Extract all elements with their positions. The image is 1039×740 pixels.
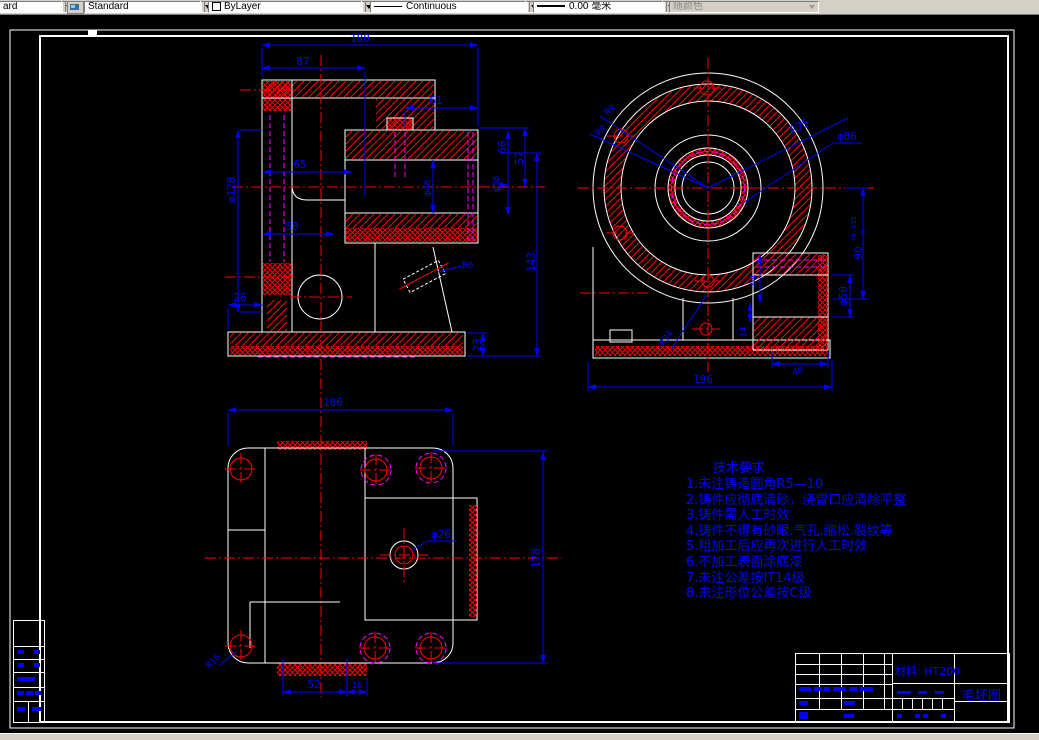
dim-57: 57 <box>513 151 526 164</box>
technical-requirements: 技术要求 1.未注铸造圆角R5—10 2.铸件应彻底清砂，浇冒口应清除平整 3.… <box>686 461 946 602</box>
dim-61: 61 <box>429 94 442 107</box>
dim-r16: R16 <box>204 652 223 671</box>
dim-90-tol-up: +0.035 <box>850 216 858 241</box>
toolbar-separator <box>662 1 667 12</box>
dim-phi26: φ26 <box>431 528 451 541</box>
dim-65: 65 <box>293 158 306 171</box>
dim-14: 14 <box>739 327 749 338</box>
dim-178: 178 <box>530 548 543 568</box>
dim-r9: R9 <box>603 104 618 118</box>
dim-90: 90 <box>852 246 865 259</box>
text-style-combo[interactable]: Standard <box>84 1 215 13</box>
dim-phi50: φ50 <box>837 286 850 306</box>
dim-40: 40 <box>791 366 804 378</box>
style-combo-label: ard <box>3 1 17 12</box>
plot-style-label: 随颜色 <box>673 1 703 12</box>
color-swatch-icon <box>212 2 221 11</box>
dim-90-tol-dn: 0 <box>859 230 867 234</box>
chevron-down-icon <box>806 2 818 12</box>
title-block: 材料: HT200 毛坯图 <box>795 653 1010 723</box>
side-view <box>578 58 875 372</box>
r6-slot <box>396 257 452 297</box>
toolbar-separator <box>361 1 366 12</box>
color-combo[interactable]: ByLayer <box>208 1 376 13</box>
tech-req-item: 8.未注形位公差按C级 <box>686 586 946 602</box>
title-block-drawing-name: 毛坯图 <box>962 685 1008 704</box>
tech-req-item: 6.不加工表面涂底漆 <box>686 555 946 571</box>
tech-req-item: 7.未注公差按IT14级 <box>686 571 946 587</box>
dim-87: 87 <box>296 55 309 68</box>
tech-req-item: 5.粗加工后应再次进行人工时效 <box>686 539 946 555</box>
technical-requirements-title: 技术要求 <box>713 461 946 477</box>
linetype-glyph-icon <box>374 6 402 7</box>
toolbar-separator <box>525 1 530 12</box>
status-strip <box>0 733 1039 740</box>
tech-req-item: 2.铸件应彻底清砂，浇冒口应清除平整 <box>686 493 946 509</box>
lineweight-combo[interactable]: 0.00 毫米 <box>533 1 678 13</box>
toolbar: ard Standard ByLayer Continuous 0.00 毫米 … <box>0 0 1039 15</box>
dim-phi86: φ86 <box>837 130 857 143</box>
dim-16: 16 <box>352 681 363 691</box>
dim-r6: R6 <box>463 261 474 271</box>
title-block-material: 材料: HT200 <box>895 663 1007 679</box>
toolbar-separator <box>200 1 205 12</box>
dim-66: 66 <box>496 140 509 153</box>
dim-64: 64 <box>749 275 759 286</box>
linetype-combo[interactable]: Continuous <box>370 1 541 13</box>
top-view-dimensions: 186 178 φ26 52 16 R16 <box>204 396 548 696</box>
text-style-label: Standard <box>88 1 129 12</box>
dim-phi58: φ58 <box>492 176 502 192</box>
tech-req-item: 4.铸件不得有砂眼.气孔.缩松.裂纹等 <box>686 524 946 540</box>
margin-table <box>13 620 45 723</box>
dim-50: 50 <box>285 220 298 233</box>
lineweight-label: 0.00 毫米 <box>569 1 611 12</box>
drawing-canvas[interactable]: 180 87 61 65 50 26 23 143 57 66 φ128 φ48… <box>0 0 1039 740</box>
dim-26: 26 <box>233 291 246 304</box>
toolbar-separator <box>61 1 66 12</box>
linetype-label: Continuous <box>406 1 457 12</box>
dim-52: 52 <box>307 678 320 691</box>
dim-143: 143 <box>525 252 538 272</box>
dim-180: 180 <box>350 32 370 45</box>
text-style-icon[interactable] <box>67 1 84 14</box>
tech-req-item: 3.铸件需人工时效 <box>686 508 946 524</box>
dim-r34: R34 <box>658 329 676 348</box>
dim-phi48: φ48 <box>423 180 433 196</box>
dim-r75: R75 <box>788 116 812 137</box>
dim-196: 196 <box>693 373 713 386</box>
plot-style-combo: 随颜色 <box>669 1 819 13</box>
lineweight-glyph-icon <box>537 5 565 7</box>
dim-23: 23 <box>471 338 484 351</box>
tech-req-item: 1.未注铸造圆角R5—10 <box>686 477 946 493</box>
color-label: ByLayer <box>224 1 261 12</box>
sheet-frame <box>10 30 1014 728</box>
dim-186: 186 <box>323 396 343 409</box>
top-view <box>205 441 562 676</box>
dim-phi128: φ128 <box>225 177 238 204</box>
